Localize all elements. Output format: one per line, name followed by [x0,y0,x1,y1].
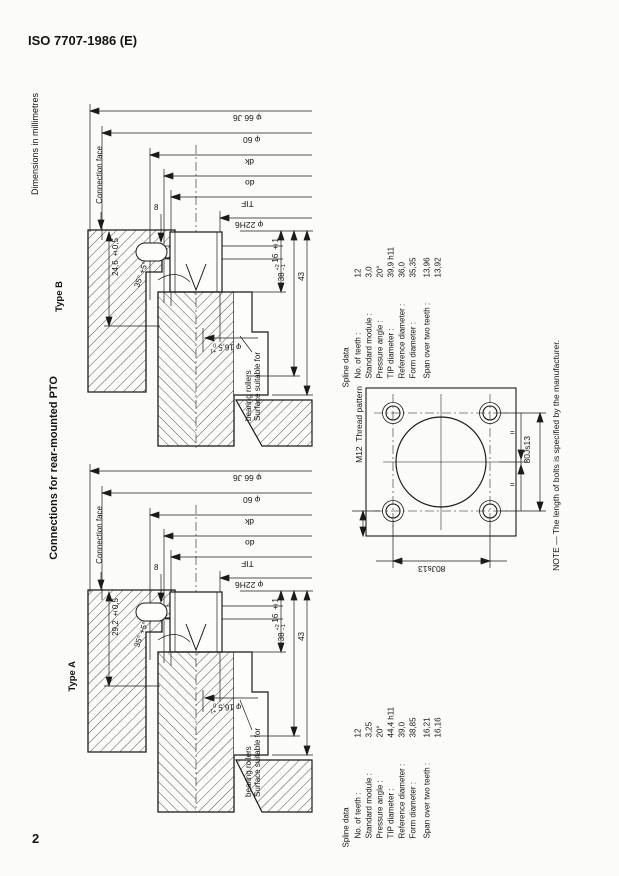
table-row: Standard module :3,0 [364,193,375,388]
table-row: No. of teeth :12 [353,653,364,848]
type-b-dim-spline-length: 24,6 ±0,5 [111,238,120,276]
type-b-dim-groove: 8 [154,203,158,212]
type-b-dim-pilot: φ 22H6 [235,219,263,229]
table-row: TIP diameter :44,4 h11 [386,653,397,848]
spline-table-title: Spline data [341,653,352,848]
table-row: Standard module :3,25 [364,653,375,848]
type-a-connection-face-label: Connection face [95,506,104,564]
table-row: Span over two teeth :13,96 13,92 [422,193,444,388]
thread-pattern-diagram [352,388,546,568]
type-b-dim-depth3: 43 [297,272,306,281]
page-header: ISO 7707-1986 (E) [28,34,137,49]
type-b-dim-dk: dk [245,156,254,166]
table-row: Pressure angle :20° [375,653,386,848]
type-b-surface-note: Surface suitable for bearing rollers [244,352,262,421]
spline-table-title: Spline data [341,193,352,388]
type-a-dim-hole: φ 16,5+10 [210,701,241,713]
type-b-dim-bearing-bore: φ 66 J6 [233,112,262,122]
type-a-bolt-hole [136,603,167,621]
type-a-dim-pilot: φ 22H6 [235,579,263,589]
type-b-dim-depth2: 38+2−1 [276,264,288,281]
type-a-label: Type A [68,661,79,692]
type-a-surface-note: Surface suitable for bearing rollers [244,728,262,797]
page-number: 2 [32,832,39,847]
type-b-label: Type B [55,281,66,312]
type-b-spline-data-table: Spline data No. of teeth :12 Standard mo… [341,193,441,388]
type-b-spline-shaft [170,232,222,292]
type-a-dim-dk: dk [245,516,254,526]
table-row: Reference diameter :39,0 [397,653,408,848]
iso-standard-page: { "page": { "header": "ISO 7707-1986 (E)… [0,0,619,876]
type-a-dim-spline-length: 29,2 ±0,5 [111,598,120,636]
equal-mark-bottom: = [510,480,515,489]
type-b-dim-hole: φ 16,5+10 [210,341,241,353]
thread-pattern-label: M12 Thread pattern [355,386,365,463]
type-a-dim-depth2: 38+2−1 [276,624,288,641]
type-a-dim-bearing-bore: φ 66 J6 [233,472,262,482]
type-a-dim-boss: φ 60 [243,494,260,504]
bolt-square-dim-bottom: 80Js13 [418,563,445,573]
type-b-dim-boss: φ 60 [243,134,260,144]
table-row: Form diameter :35,35 [408,193,419,388]
note-text: NOTE — The length of bolts is specified … [552,340,562,571]
table-row: Pressure angle :20° [375,193,386,388]
table-row: Reference diameter :36,0 [397,193,408,388]
equal-mark-top: = [510,428,515,437]
type-b-dim-tif: TIF [241,198,254,208]
table-row: TIP diameter :39,9 h11 [386,193,397,388]
type-a-spline-shaft [170,592,222,652]
type-b-connection-face-label: Connection face [95,146,104,204]
type-a-spline-data-table: Spline data No. of teeth :12 Standard mo… [341,653,441,848]
type-a-dim-depth3: 43 [297,632,306,641]
type-b-dim-depth1: 16 ±1 [271,238,280,263]
table-row: Form diameter :38,85 [408,653,419,848]
type-a-dim-groove: 8 [154,563,158,572]
type-a-dim-depth1: 16 ±1 [271,598,280,623]
table-row: No. of teeth :12 [353,193,364,388]
type-a-dim-tif: TIF [241,558,254,568]
type-a-dim-do: do [245,537,254,547]
page-title: Connections for rear-mounted PTO [48,376,61,560]
type-b-bolt-hole [136,243,167,261]
bolt-square-dim-right: 80Js13 [523,436,533,463]
table-row: Span over two teeth :16,21 16,16 [422,653,444,848]
dimensions-note: Dimensions in millimetres [30,93,40,195]
type-b-dim-do: do [245,177,254,187]
